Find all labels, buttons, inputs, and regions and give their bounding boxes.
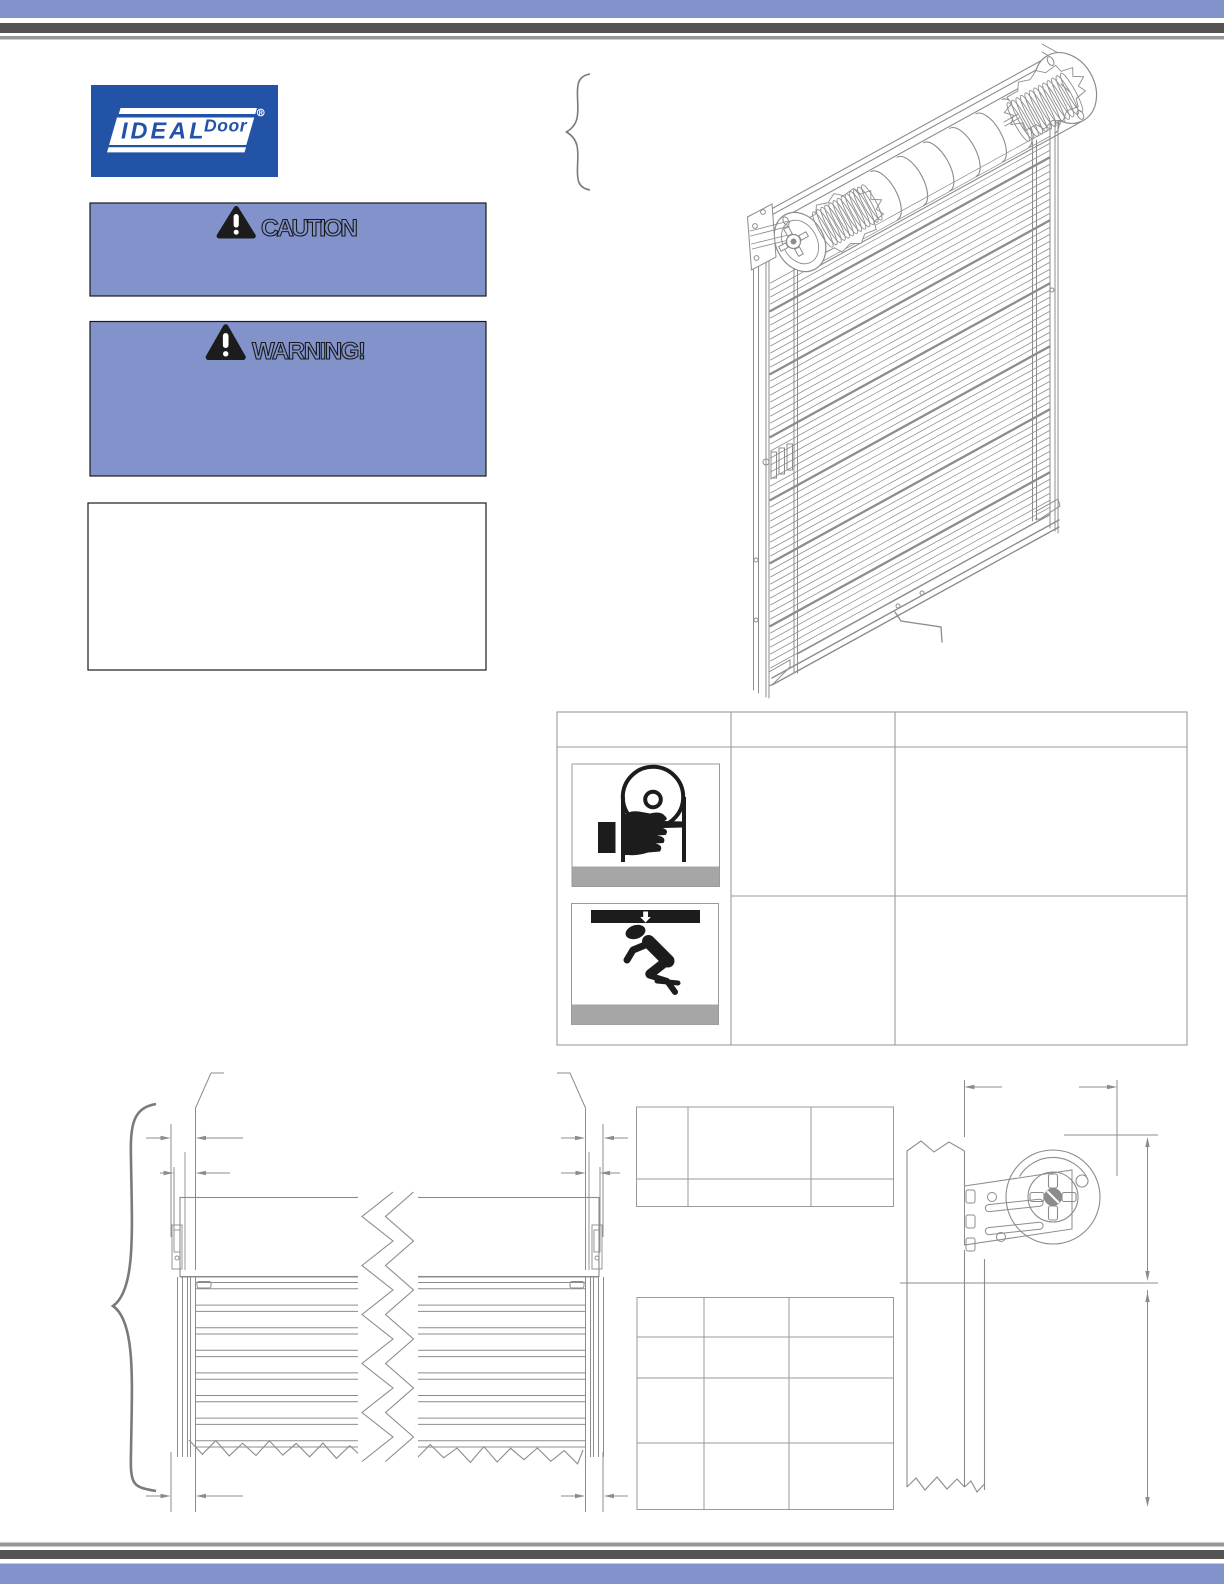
svg-text:WARNING!: WARNING! xyxy=(252,338,366,365)
svg-text:R: R xyxy=(259,111,264,117)
svg-text:CAUTION: CAUTION xyxy=(261,215,358,242)
svg-text:Door: Door xyxy=(204,116,248,136)
svg-text:IDEAL: IDEAL xyxy=(121,118,203,144)
